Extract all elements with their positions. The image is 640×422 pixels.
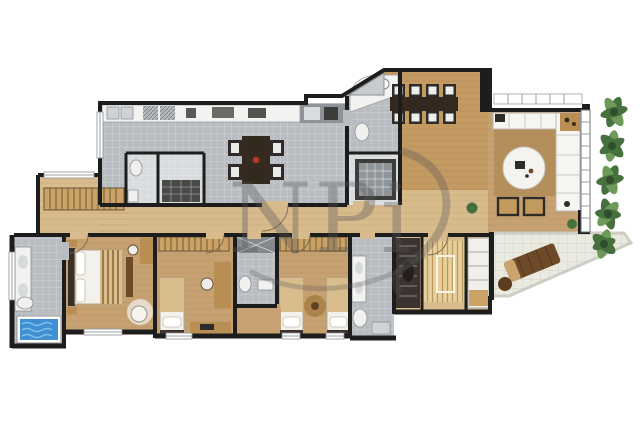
glazed-wall [581, 110, 590, 232]
headboard [68, 248, 75, 306]
palm-plant-icon [597, 129, 627, 163]
palm-plant-icon [599, 95, 629, 129]
palm-plant-icon [595, 163, 624, 197]
tv-icon [495, 114, 505, 122]
floor-lamp [564, 201, 570, 207]
palm-plant-icon [594, 197, 622, 231]
bed-bench [126, 257, 133, 297]
shelf-unit [468, 238, 489, 308]
armchair [131, 306, 147, 322]
sauna [424, 241, 466, 302]
glazed-band-top [494, 94, 582, 104]
kitchen-counter [102, 104, 345, 123]
corner-table [560, 113, 580, 131]
armchair [498, 198, 518, 215]
bedroom-3-nook [235, 306, 277, 336]
dresser [140, 238, 155, 264]
plant-icon [467, 203, 478, 214]
armchair [524, 198, 544, 215]
watermark-text: NPi [228, 163, 413, 275]
coffee-table [515, 161, 525, 169]
plant-icon [567, 219, 577, 229]
desk-chair [201, 278, 213, 290]
pantry-shelving [162, 180, 200, 202]
floorplan-svg: NPi [0, 0, 640, 422]
floorplan-image: NPi [0, 0, 640, 422]
side-table [498, 277, 512, 291]
